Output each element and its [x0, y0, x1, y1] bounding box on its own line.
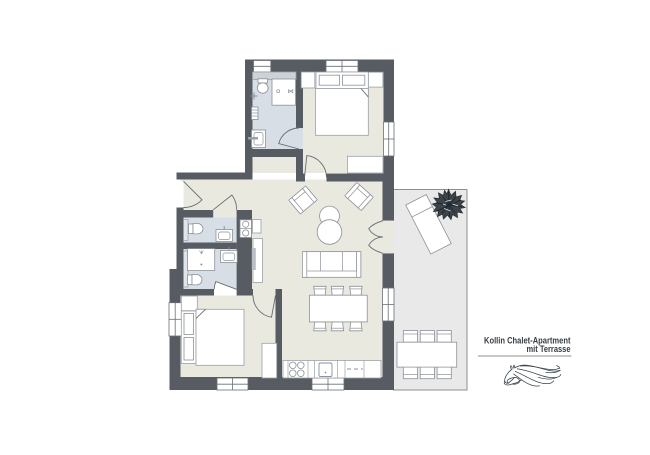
svg-text:mit Terrasse: mit Terrasse [527, 344, 571, 355]
